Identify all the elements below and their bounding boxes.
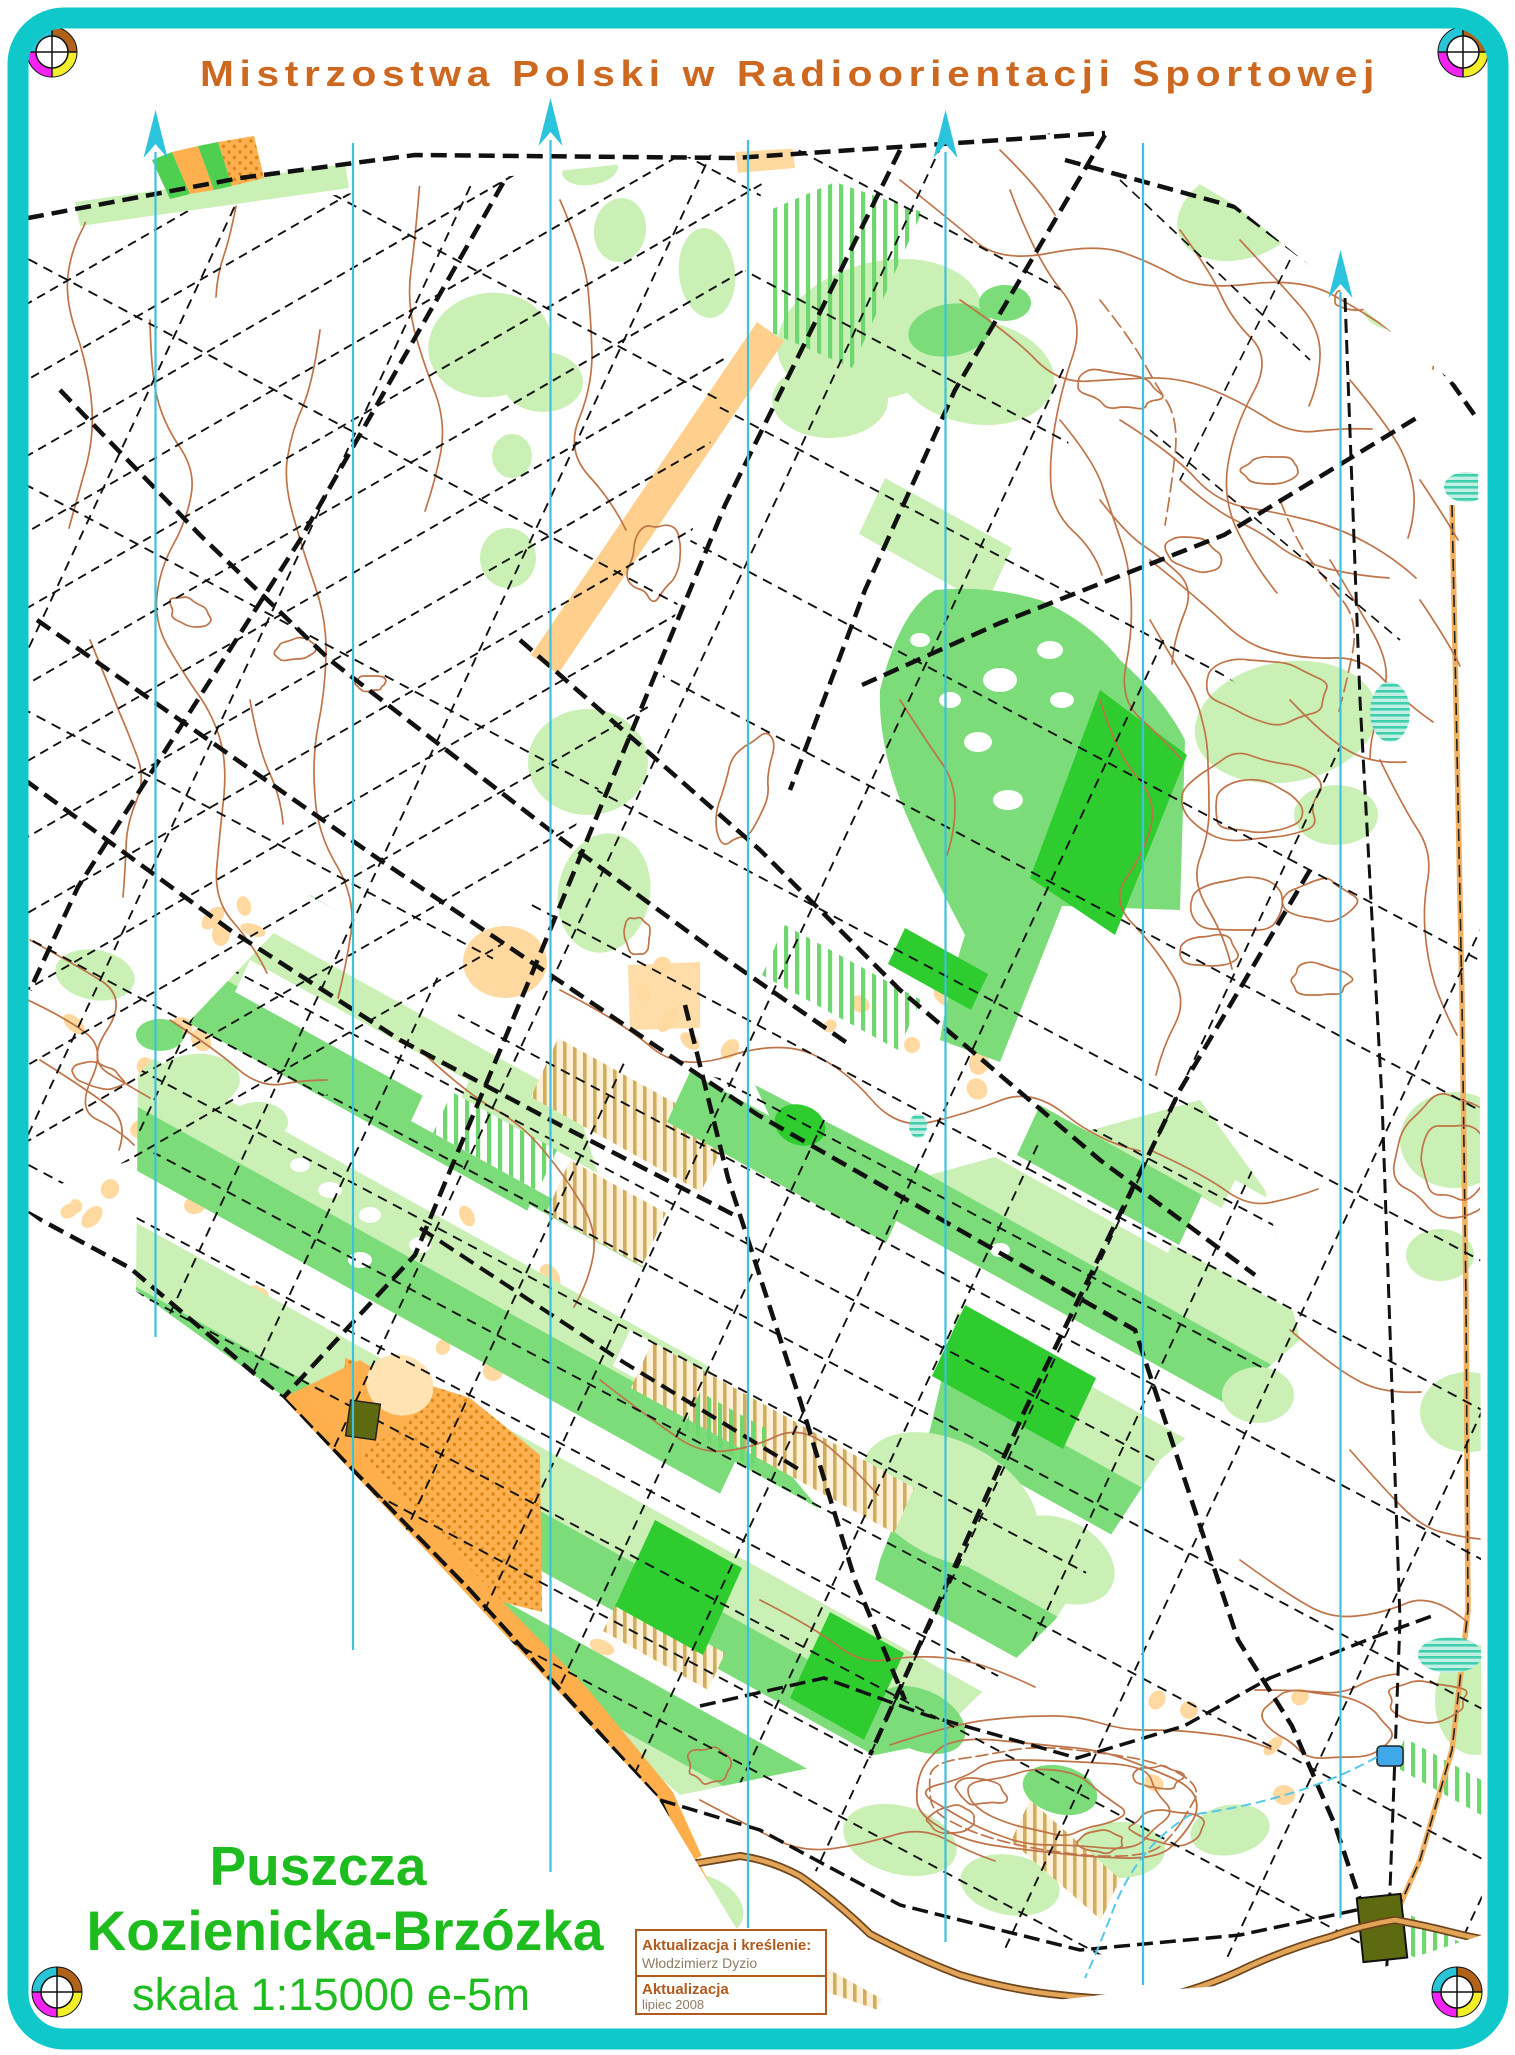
svg-text:Aktualizacja: Aktualizacja [642,1981,729,1998]
svg-text:Aktualizacja i kreślenie:: Aktualizacja i kreślenie: [642,1937,811,1954]
svg-text:lipiec 2008: lipiec 2008 [642,1997,704,2012]
svg-text:Puszcza: Puszcza [209,1835,426,1897]
svg-text:Włodzimierz Dyzio: Włodzimierz Dyzio [642,1955,757,1971]
svg-text:Kozienicka-Brzózka: Kozienicka-Brzózka [87,1899,605,1962]
svg-text:Mistrzostwa Polski w Radioorie: Mistrzostwa Polski w Radioorientacji Spo… [200,53,1380,94]
svg-text:skala 1:15000 e-5m: skala 1:15000 e-5m [132,1969,530,2020]
